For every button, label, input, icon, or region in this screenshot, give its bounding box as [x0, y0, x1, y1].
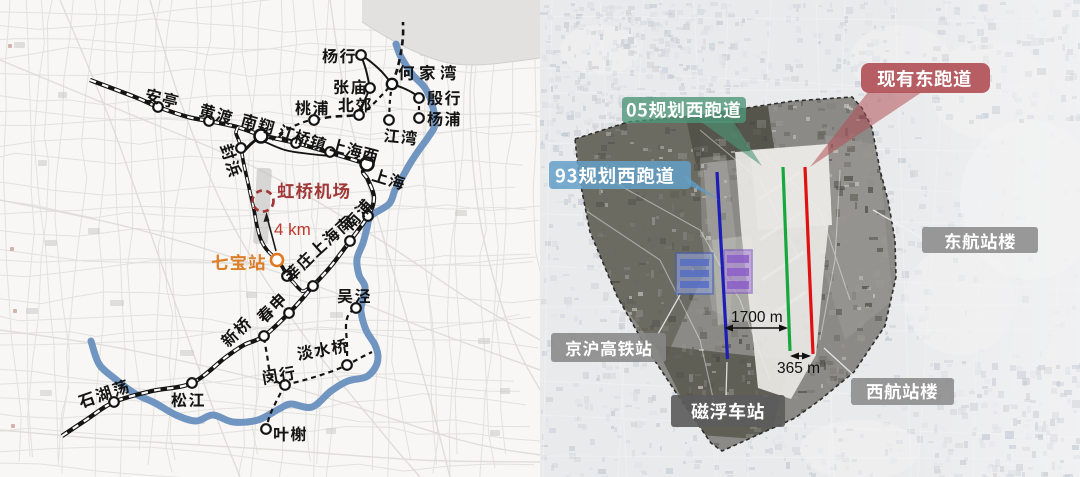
svg-text:4 km: 4 km: [274, 220, 311, 239]
svg-text:365 m: 365 m: [777, 360, 820, 377]
svg-text:1700 m: 1700 m: [731, 309, 783, 326]
